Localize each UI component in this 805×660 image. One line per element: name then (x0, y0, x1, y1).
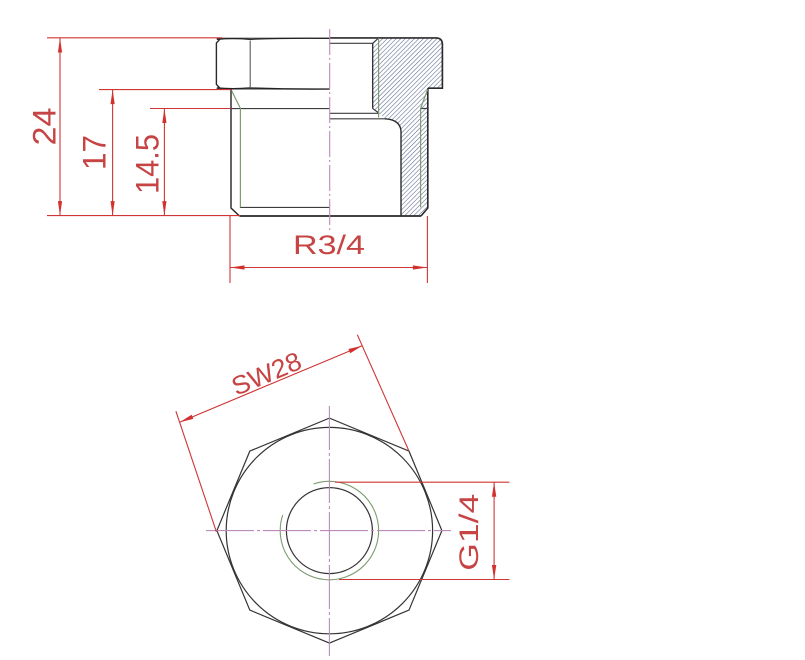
svg-text:24: 24 (27, 108, 63, 146)
svg-text:R3/4: R3/4 (293, 230, 365, 260)
svg-text:G1/4: G1/4 (454, 494, 484, 571)
svg-text:14.5: 14.5 (129, 134, 165, 194)
svg-text:17: 17 (76, 135, 112, 170)
